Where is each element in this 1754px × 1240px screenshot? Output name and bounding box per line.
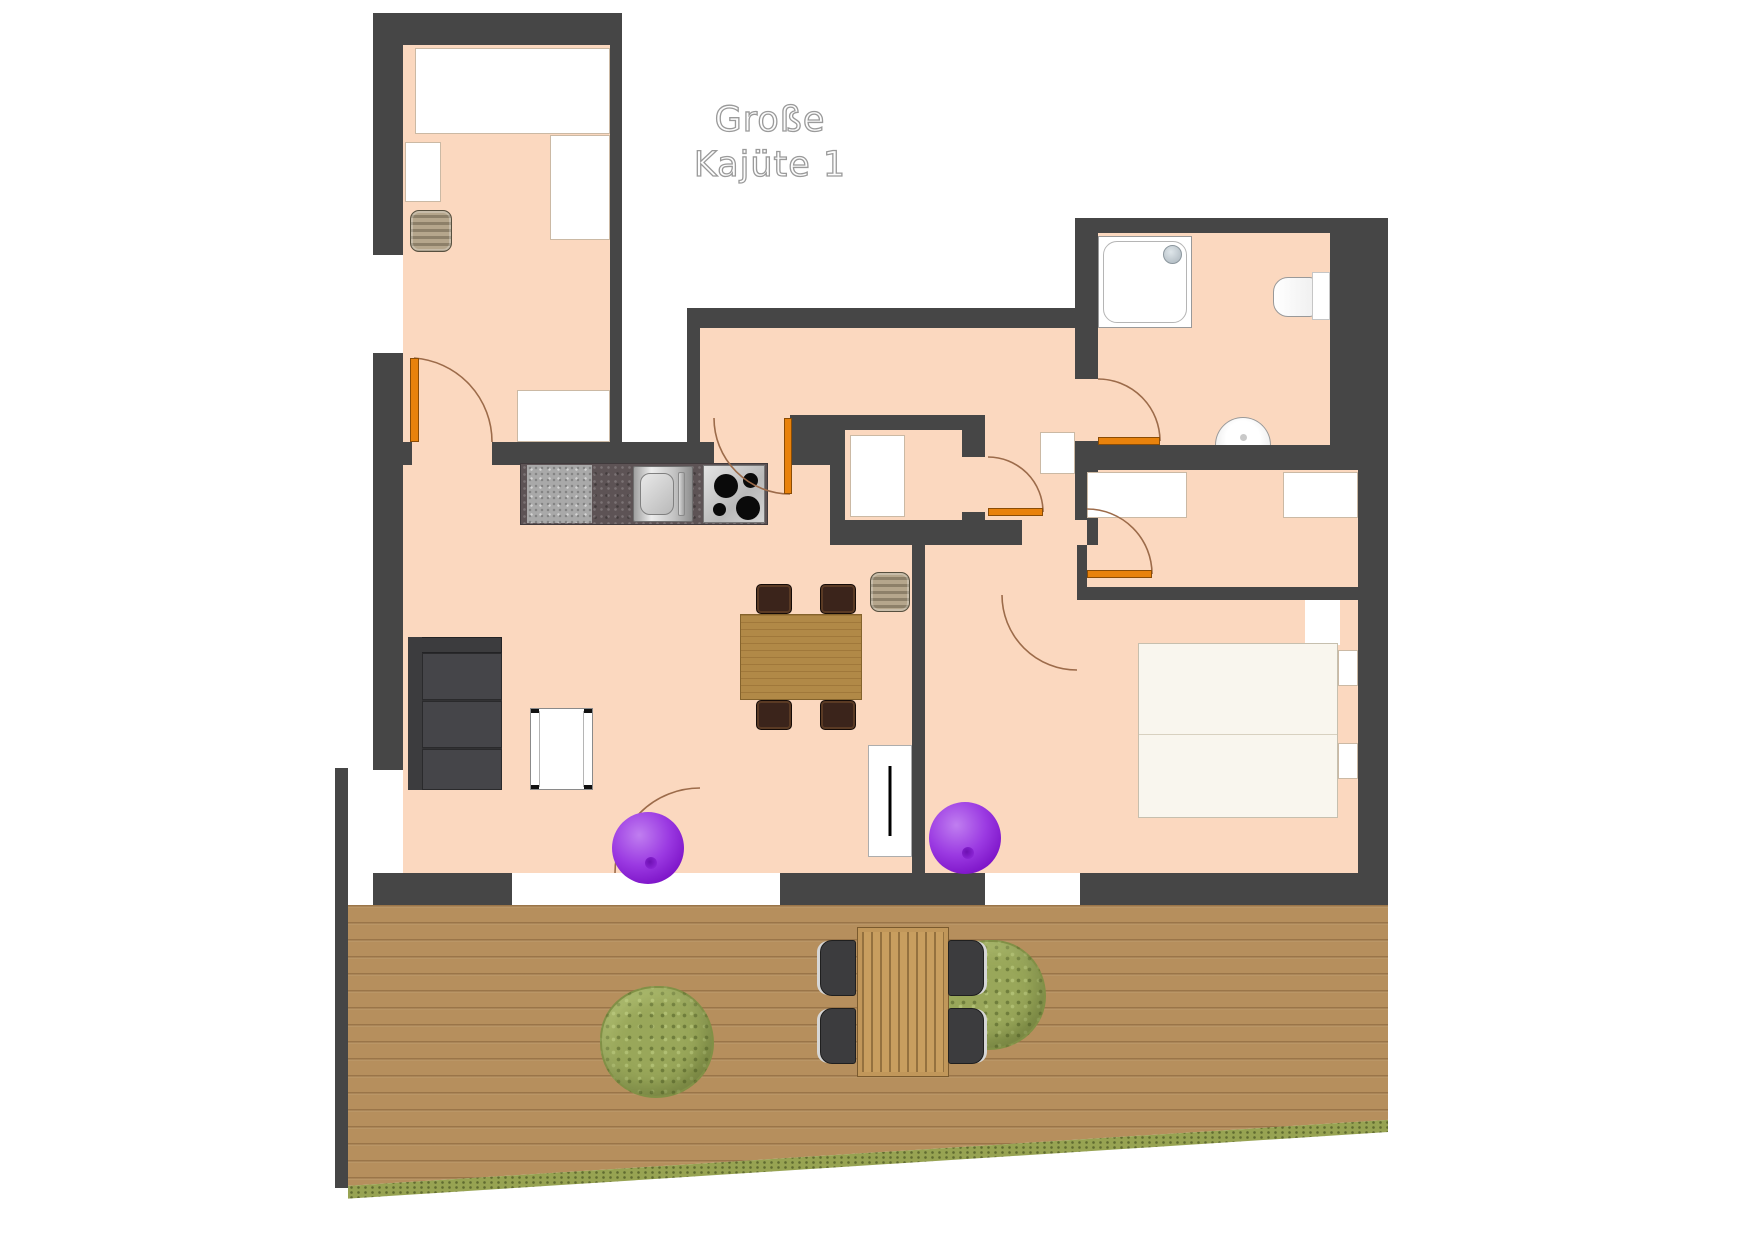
table-corner bbox=[584, 785, 592, 789]
kitchen-counter-light-section bbox=[527, 465, 592, 523]
plan-title: Große Kajüte 1 bbox=[570, 98, 970, 188]
table-frame-line bbox=[583, 711, 584, 787]
bedroom-wardrobe-left bbox=[1087, 472, 1187, 518]
shower-drain-icon bbox=[1163, 245, 1182, 264]
shower bbox=[1098, 236, 1192, 328]
wall-entry-left-upper bbox=[373, 45, 403, 255]
burner-icon bbox=[713, 503, 726, 516]
pillow bbox=[1338, 743, 1358, 779]
wooden-stool-entry bbox=[410, 210, 452, 252]
burner-icon bbox=[736, 496, 760, 520]
wall-entry-bottom-b bbox=[492, 442, 610, 465]
outdoor-chair bbox=[820, 1008, 856, 1064]
mattress-split-line bbox=[1139, 734, 1337, 735]
hall-closet bbox=[850, 435, 905, 517]
door-leaf-bedroom bbox=[1087, 570, 1152, 578]
sofa-armrest bbox=[408, 637, 502, 653]
purple-ball-living bbox=[612, 812, 684, 884]
entry-sideboard bbox=[517, 390, 610, 442]
wall-bathroom-right bbox=[1330, 218, 1388, 460]
dining-chair bbox=[820, 700, 856, 730]
burner-icon bbox=[714, 474, 738, 498]
bedroom-wardrobe-right bbox=[1283, 472, 1358, 518]
dining-chair bbox=[756, 700, 792, 730]
wall-bathroom-bottom bbox=[1075, 445, 1388, 470]
door-leaf-kitchen bbox=[784, 418, 792, 494]
table-frame-line bbox=[539, 711, 540, 787]
wall-bedroom-right bbox=[1358, 460, 1388, 905]
sofa-cushion bbox=[422, 749, 502, 790]
burner-icon bbox=[743, 473, 758, 488]
window-terrace-bedroom bbox=[985, 873, 1080, 905]
sofa bbox=[408, 637, 502, 790]
dining-chair bbox=[756, 584, 792, 614]
stove bbox=[703, 465, 765, 523]
pillow bbox=[1338, 650, 1358, 686]
sink-basin bbox=[640, 473, 674, 515]
purple-ball-bedroom bbox=[929, 802, 1001, 874]
doorway-bedroom bbox=[1022, 520, 1087, 545]
wall-living-bedroom-divider bbox=[912, 545, 925, 873]
table-corner bbox=[531, 709, 539, 713]
wall-left-main bbox=[373, 465, 403, 770]
wall-entry-top bbox=[373, 13, 622, 45]
table-corner bbox=[531, 785, 539, 789]
wooden-stool-living bbox=[870, 572, 910, 612]
double-bed bbox=[1138, 643, 1338, 818]
table-corner bbox=[584, 709, 592, 713]
radiator bbox=[868, 745, 912, 857]
plan-title-line2: Kajüte 1 bbox=[570, 143, 970, 188]
wall-corridor-top bbox=[687, 308, 1085, 328]
niche-cabinet bbox=[1040, 432, 1075, 474]
wall-bedroom-top-right bbox=[1087, 587, 1358, 600]
kitchen-sink bbox=[633, 466, 693, 522]
floor-plan-canvas: Große Kajüte 1 bbox=[0, 0, 1754, 1240]
wall-kitchen-door-stub bbox=[790, 415, 830, 465]
outdoor-chair bbox=[820, 940, 856, 996]
sofa-cushion bbox=[422, 701, 502, 748]
dining-chair bbox=[820, 584, 856, 614]
outdoor-table bbox=[858, 928, 948, 1076]
bedroom-window-recess bbox=[1305, 600, 1340, 645]
door-leaf-bathroom bbox=[1098, 437, 1160, 445]
bush-left bbox=[600, 986, 714, 1098]
plan-title-line1: Große bbox=[570, 98, 970, 143]
wall-corridor-bottom bbox=[830, 415, 985, 430]
sofa-backrest bbox=[408, 637, 422, 790]
dining-table bbox=[740, 614, 862, 700]
outdoor-chair bbox=[948, 940, 984, 996]
outdoor-chair bbox=[948, 1008, 984, 1064]
sink-drainboard bbox=[678, 472, 685, 516]
wall-closet-cell-left-side bbox=[830, 415, 845, 545]
wall-entry-left-lower bbox=[373, 353, 403, 465]
entry-cabinet-left bbox=[405, 142, 441, 202]
door-leaf-closet bbox=[988, 508, 1043, 516]
doorway-kitchen-corridor bbox=[714, 442, 790, 465]
doorway-closet-cell bbox=[962, 457, 985, 512]
doorway-bathroom bbox=[1075, 379, 1098, 441]
sofa-cushion bbox=[422, 653, 502, 700]
coffee-table bbox=[530, 708, 593, 790]
toilet bbox=[1273, 277, 1315, 317]
wall-entry-bottom-a bbox=[403, 442, 412, 465]
deck-side-fence bbox=[335, 768, 348, 1188]
door-leaf-entry bbox=[410, 358, 419, 442]
toilet-tank bbox=[1312, 272, 1330, 320]
wall-corridor-left bbox=[687, 308, 700, 465]
doorway-entry-room bbox=[412, 442, 492, 465]
